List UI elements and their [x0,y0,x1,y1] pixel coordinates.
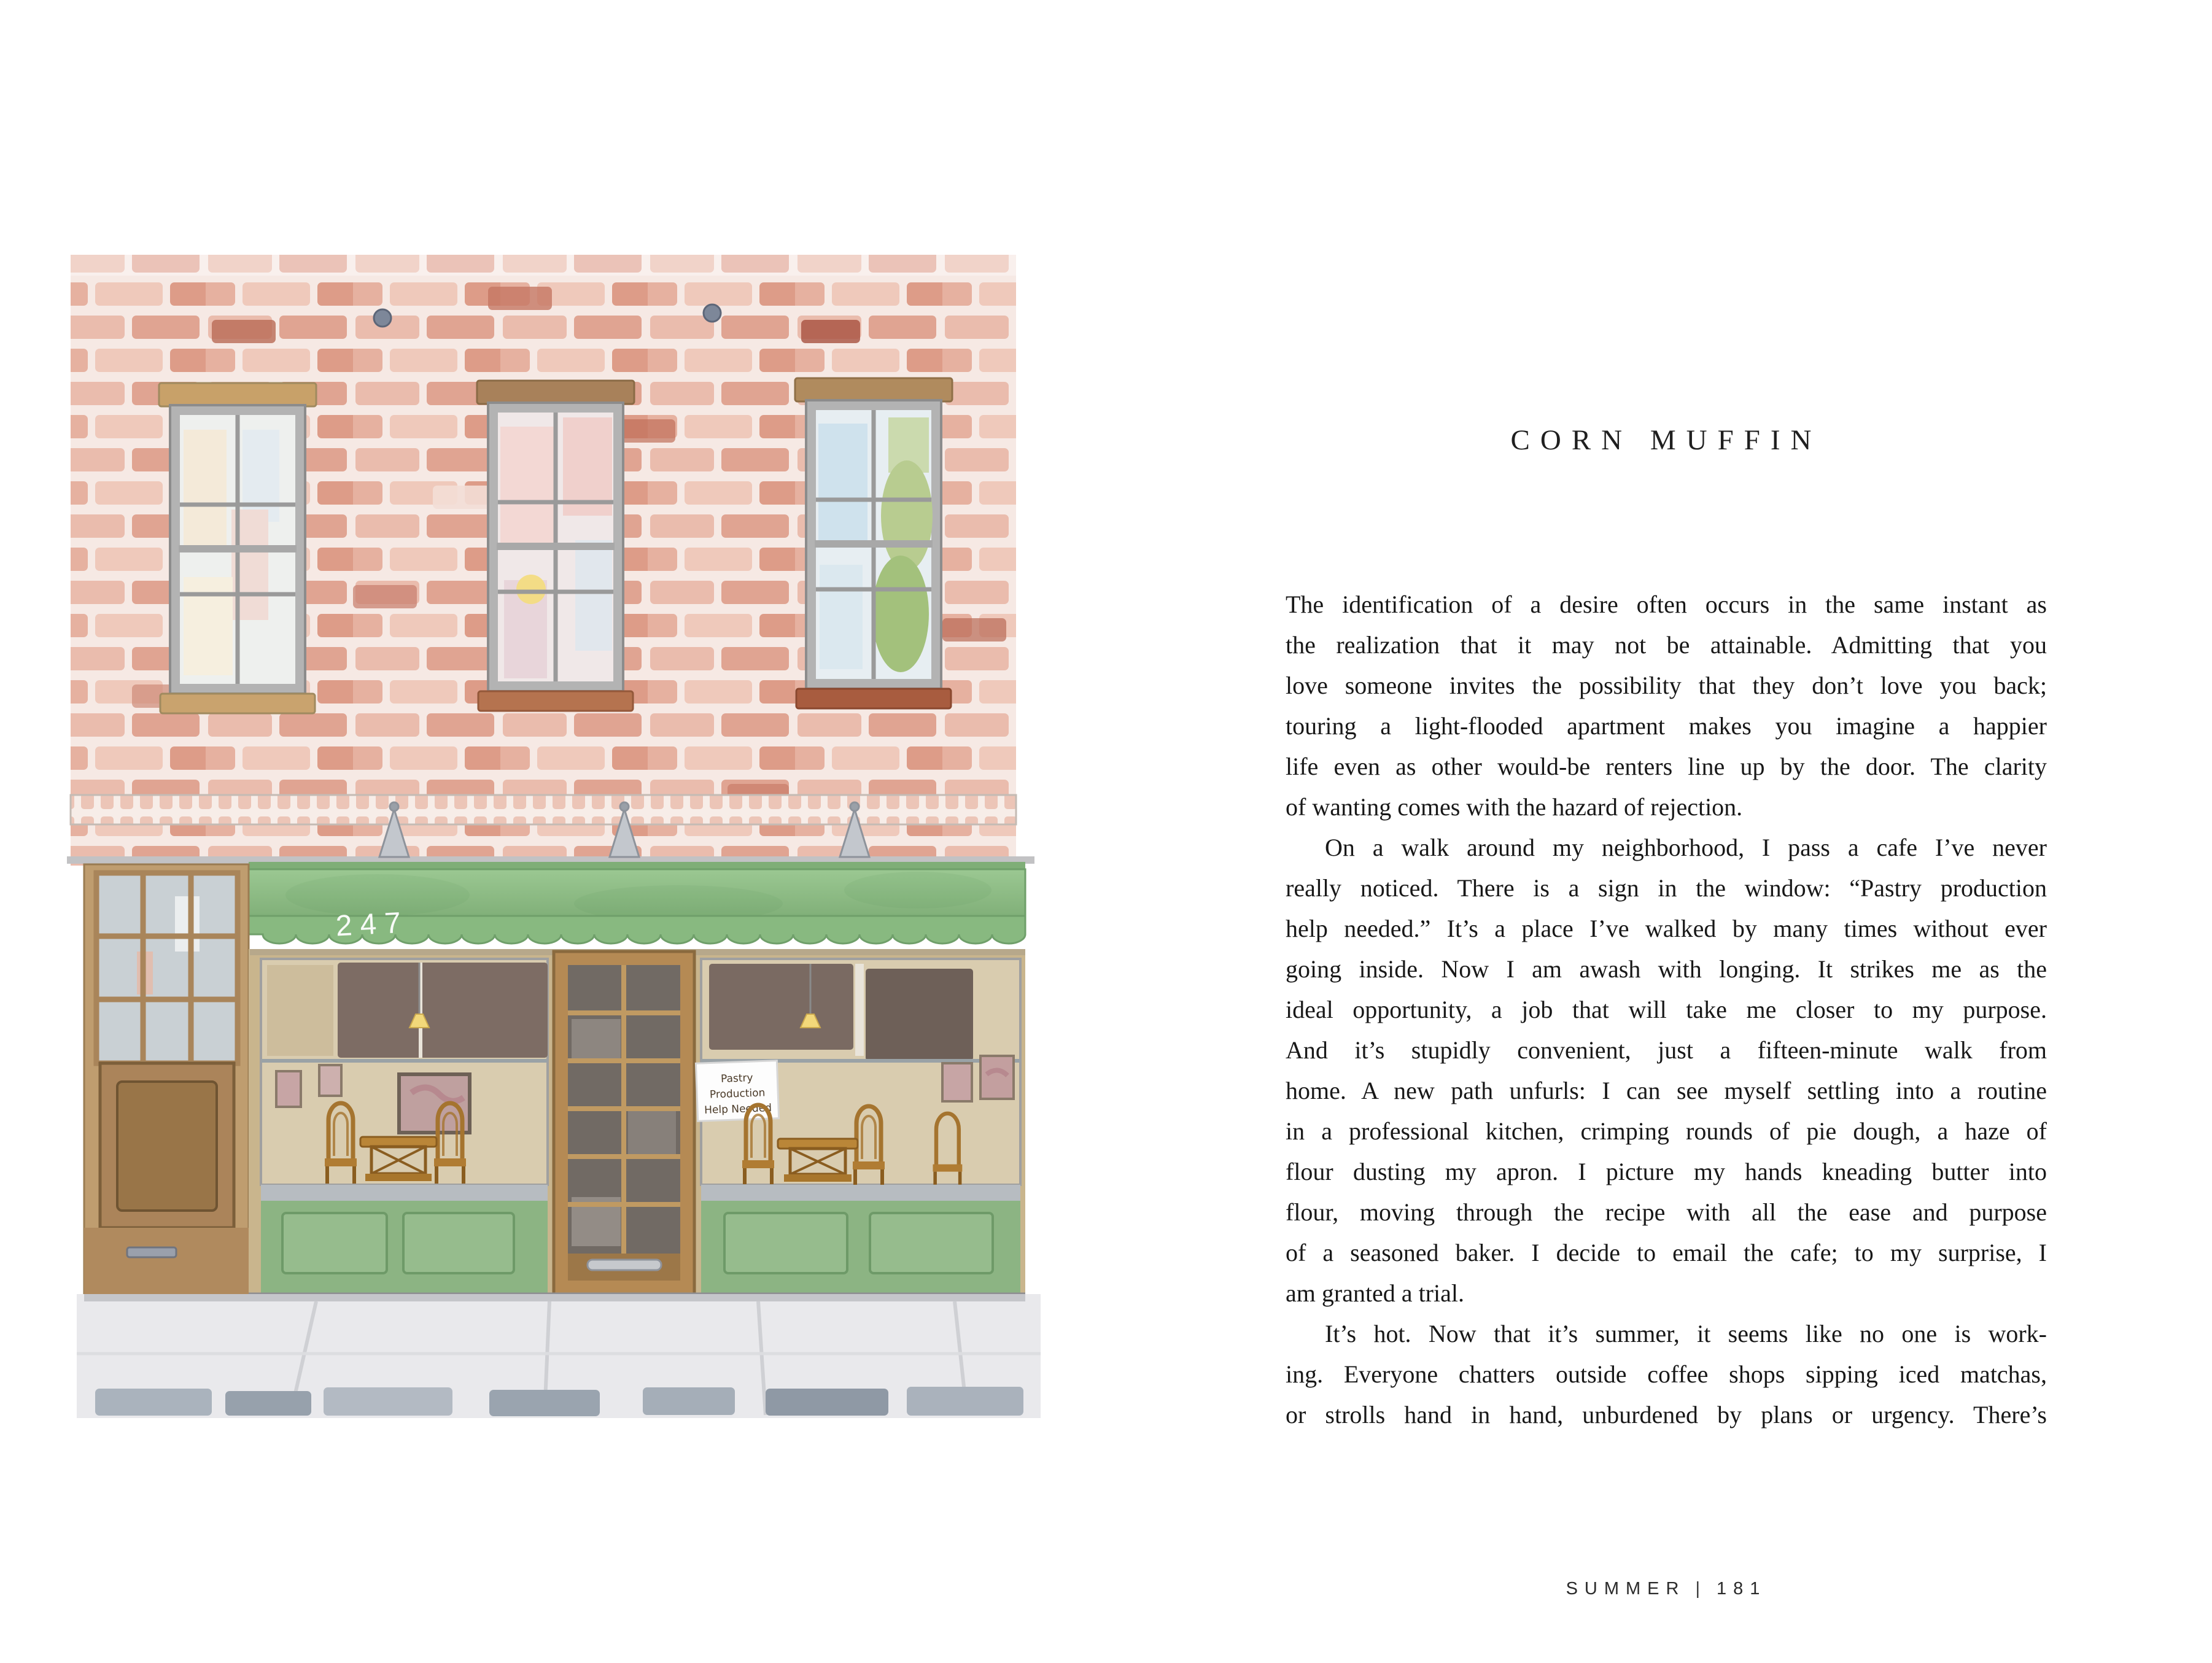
paragraph: It’s hot. Now that it’s summer, it seems… [1286,1314,2047,1435]
text-line: or strolls hand in hand, unburdened by p… [1286,1395,2047,1435]
upper-window-right [795,378,952,708]
text-line: touring a light-flooded apartment makes … [1286,706,2047,746]
curb-stones [95,1387,1023,1416]
cafe-watercolor-illustration: 247 [58,246,1041,1443]
paragraph: On a walk around my neighborhood, I pass… [1286,828,2047,1314]
anchor-plate-icon [704,304,721,322]
awning: 247 [249,862,1025,944]
upper-window-left [159,383,316,713]
text-line: home. A new path unfurls: I can see myse… [1286,1071,2047,1111]
storefront: Pastry Production Help Needed [249,949,1025,1294]
cafe-table-icon [360,1137,437,1181]
text-line: On a walk around my neighborhood, I pass… [1286,828,2047,868]
text-line: of wanting comes with the hazard of reje… [1286,787,2047,828]
cafe-entrance-door [554,952,694,1294]
running-footer: SUMMER|181 [1286,1579,2047,1599]
body-text: The identification of a desire often occ… [1286,584,2047,1435]
text-line: really noticed. There is a sign in the w… [1286,868,2047,909]
paragraph: The identification of a desire often occ… [1286,584,2047,828]
text-line: And it’s stupidly convenient, just a fif… [1286,1030,2047,1071]
text-line: the realization that it may not be attai… [1286,625,2047,665]
kick-plate-icon [588,1260,661,1270]
text-line: of a seasoned baker. I decide to email t… [1286,1233,2047,1273]
illustration-canvas: 247 [58,246,1041,1443]
text-line: going inside. Now I am awash with longin… [1286,949,2047,990]
text-line: life even as other would-be renters line… [1286,746,2047,787]
text-line: love someone invites the possibility tha… [1286,665,2047,706]
display-window-left [261,959,548,1185]
text-line: in a professional kitchen, crimping roun… [1286,1111,2047,1152]
text-line: flour, moving through the recipe with al… [1286,1192,2047,1233]
window-sign-line: Production [710,1087,766,1101]
text-line: flour dusting my apron. I picture my han… [1286,1152,2047,1192]
text-line: It’s hot. Now that it’s summer, it seems… [1286,1314,2047,1354]
display-window-right: Pastry Production Help Needed [696,959,1020,1185]
text-line: ideal opportunity, a job that will take … [1286,990,2047,1030]
mail-slot-icon [127,1247,176,1257]
awning-street-number: 247 [335,906,409,942]
neighbor-entrance [84,864,249,1294]
soldier-brick-band [71,795,1016,824]
cafe-table-icon [778,1139,858,1182]
chapter-title: CORN MUFFIN [1286,424,2047,457]
text-line: The identification of a desire often occ… [1286,584,2047,625]
sidewalk [77,1294,1041,1418]
window-sign-line: Pastry [721,1072,753,1085]
upper-window-middle [477,381,634,711]
text-line: help needed.” It’s a place I’ve walked b… [1286,909,2047,949]
footer-page-number: 181 [1717,1579,1766,1599]
footer-section-label: SUMMER [1566,1579,1686,1599]
anchor-plate-icon [374,309,391,327]
text-line: ing. Everyone chatters outside coffee sh… [1286,1354,2047,1395]
text-line: am granted a trial. [1286,1273,2047,1314]
footer-separator: | [1695,1579,1707,1599]
